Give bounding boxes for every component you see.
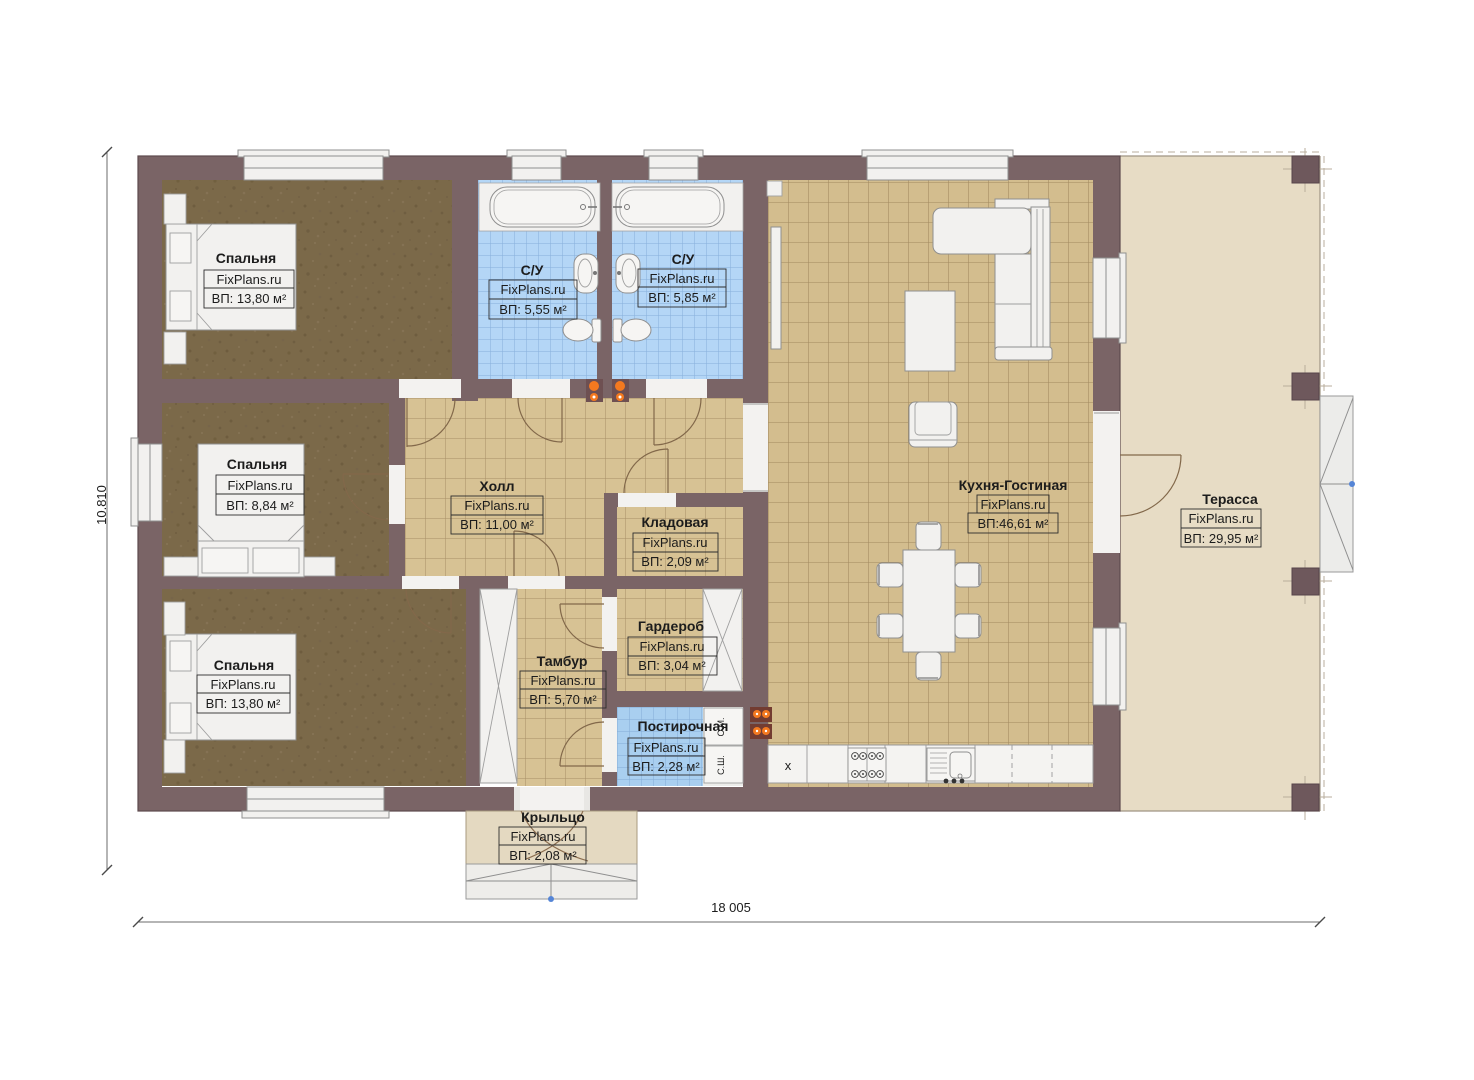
svg-text:ВП: 13,80 м²: ВП: 13,80 м² [212,291,287,306]
svg-text:Крыльцо: Крыльцо [521,809,585,825]
svg-text:ВП: 2,28 м²: ВП: 2,28 м² [632,759,700,774]
svg-text:FixPlans.ru: FixPlans.ru [642,535,707,550]
svg-text:ВП: 5,85 м²: ВП: 5,85 м² [648,290,716,305]
svg-text:Спальня: Спальня [214,657,274,673]
svg-text:С/У: С/У [672,251,695,267]
svg-text:ВП:46,61 м²: ВП:46,61 м² [977,516,1049,531]
svg-text:ВП: 5,55 м²: ВП: 5,55 м² [499,302,567,317]
svg-text:ВП: 3,04 м²: ВП: 3,04 м² [638,658,706,673]
svg-text:18 005: 18 005 [711,900,751,915]
svg-text:FixPlans.ru: FixPlans.ru [216,272,281,287]
svg-text:Постирочная: Постирочная [638,718,729,734]
svg-text:ВП: 2,09 м²: ВП: 2,09 м² [641,554,709,569]
svg-text:x: x [785,758,792,773]
svg-text:Кухня-Гостиная: Кухня-Гостиная [959,477,1068,493]
svg-text:ВП: 29,95 м²: ВП: 29,95 м² [1184,531,1259,546]
svg-text:FixPlans.ru: FixPlans.ru [510,829,575,844]
svg-text:FixPlans.ru: FixPlans.ru [227,478,292,493]
svg-text:Терасса: Терасса [1202,491,1258,507]
svg-text:ВП: 8,84 м²: ВП: 8,84 м² [226,498,294,513]
svg-text:FixPlans.ru: FixPlans.ru [464,498,529,513]
svg-text:С/У: С/У [521,262,544,278]
svg-text:Кладовая: Кладовая [641,514,708,530]
svg-text:Холл: Холл [479,478,514,494]
svg-text:ВП: 13,80 м²: ВП: 13,80 м² [206,696,281,711]
svg-text:Гардероб: Гардероб [638,618,705,634]
svg-text:FixPlans.ru: FixPlans.ru [500,282,565,297]
svg-text:FixPlans.ru: FixPlans.ru [210,677,275,692]
svg-text:FixPlans.ru: FixPlans.ru [1188,511,1253,526]
svg-text:ВП: 5,70 м²: ВП: 5,70 м² [529,692,597,707]
svg-text:10.810: 10.810 [94,485,109,525]
svg-text:Тамбур: Тамбур [537,653,588,669]
svg-text:FixPlans.ru: FixPlans.ru [530,673,595,688]
svg-text:ВП: 11,00 м²: ВП: 11,00 м² [460,517,534,532]
svg-text:FixPlans.ru: FixPlans.ru [649,271,714,286]
svg-text:FixPlans.ru: FixPlans.ru [633,740,698,755]
svg-text:ВП: 2,08 м²: ВП: 2,08 м² [509,848,577,863]
svg-text:Спальня: Спальня [227,456,287,472]
svg-text:FixPlans.ru: FixPlans.ru [639,639,704,654]
svg-text:FixPlans.ru: FixPlans.ru [980,497,1045,512]
svg-text:Спальня: Спальня [216,250,276,266]
svg-text:С.Ш.: С.Ш. [716,755,726,775]
